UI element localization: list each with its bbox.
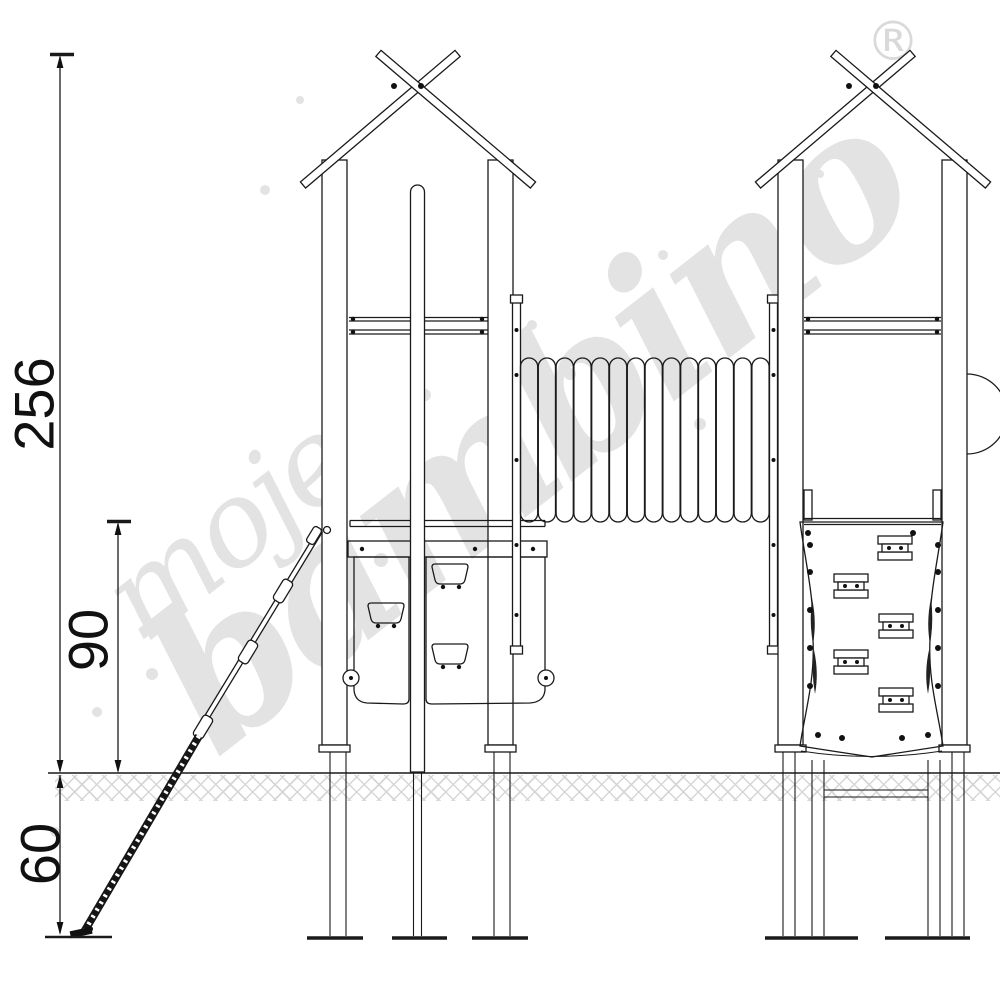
climbing-hold [879, 688, 913, 712]
left-tower-rails [349, 318, 511, 335]
tunnel-rib [752, 358, 769, 522]
left-tower-post-left [322, 160, 347, 745]
tunnel-bridge [511, 295, 780, 654]
tunnel-corrugated-ribs [521, 358, 770, 522]
tunnel-rib [681, 358, 698, 522]
tunnel-rib [716, 358, 733, 522]
climbing-hold [879, 614, 913, 638]
right-tower-climbing-wall [800, 522, 943, 757]
climbing-hold [878, 536, 912, 560]
climbing-hold [834, 574, 868, 598]
dimension-deck-height [107, 522, 131, 774]
technical-drawing [0, 0, 1000, 1000]
left-tower-foot-cap [485, 745, 516, 752]
left-tower-loop-pole [411, 185, 425, 772]
tunnel-rib [734, 358, 751, 522]
pole-coupler [272, 578, 294, 604]
tunnel-end-board-left [513, 302, 521, 648]
right-tower-post-left [778, 160, 803, 745]
dimension-foundation-depth [45, 775, 112, 937]
tunnel-end-board-right [770, 302, 778, 648]
climber-pole [195, 530, 322, 735]
wall-bolts [805, 530, 941, 741]
handhold [432, 564, 468, 584]
pole-coupler [237, 639, 259, 665]
right-tower-post-right [942, 160, 967, 745]
watermark-dots [50, 96, 824, 837]
tunnel-rib [699, 358, 716, 522]
tunnel-rib [627, 358, 644, 522]
climbing-hold [834, 650, 868, 674]
tunnel-rib [556, 358, 573, 522]
left-tower-climbing-panels [343, 557, 554, 704]
tunnel-rib [538, 358, 555, 522]
left-tower-post-right [488, 160, 513, 745]
right-tower [755, 50, 1000, 938]
tunnel-rib [592, 358, 609, 522]
tunnel-rib [574, 358, 591, 522]
handhold [368, 603, 404, 623]
dimension-total-height [50, 55, 74, 774]
tunnel-rib [663, 358, 680, 522]
handhold [432, 644, 468, 664]
tunnel-rib [645, 358, 662, 522]
right-tower-foundation [765, 752, 970, 938]
left-tower-foot-cap [319, 745, 350, 752]
left-tower-foundation [307, 752, 528, 938]
right-tower-rails [804, 318, 941, 525]
side-porthole-arc [967, 374, 1000, 454]
tunnel-rib [610, 358, 627, 522]
tunnel-rib [521, 358, 538, 522]
drawing-canvas: moje bambino ® [0, 0, 1000, 1000]
rope-climber [70, 525, 331, 938]
